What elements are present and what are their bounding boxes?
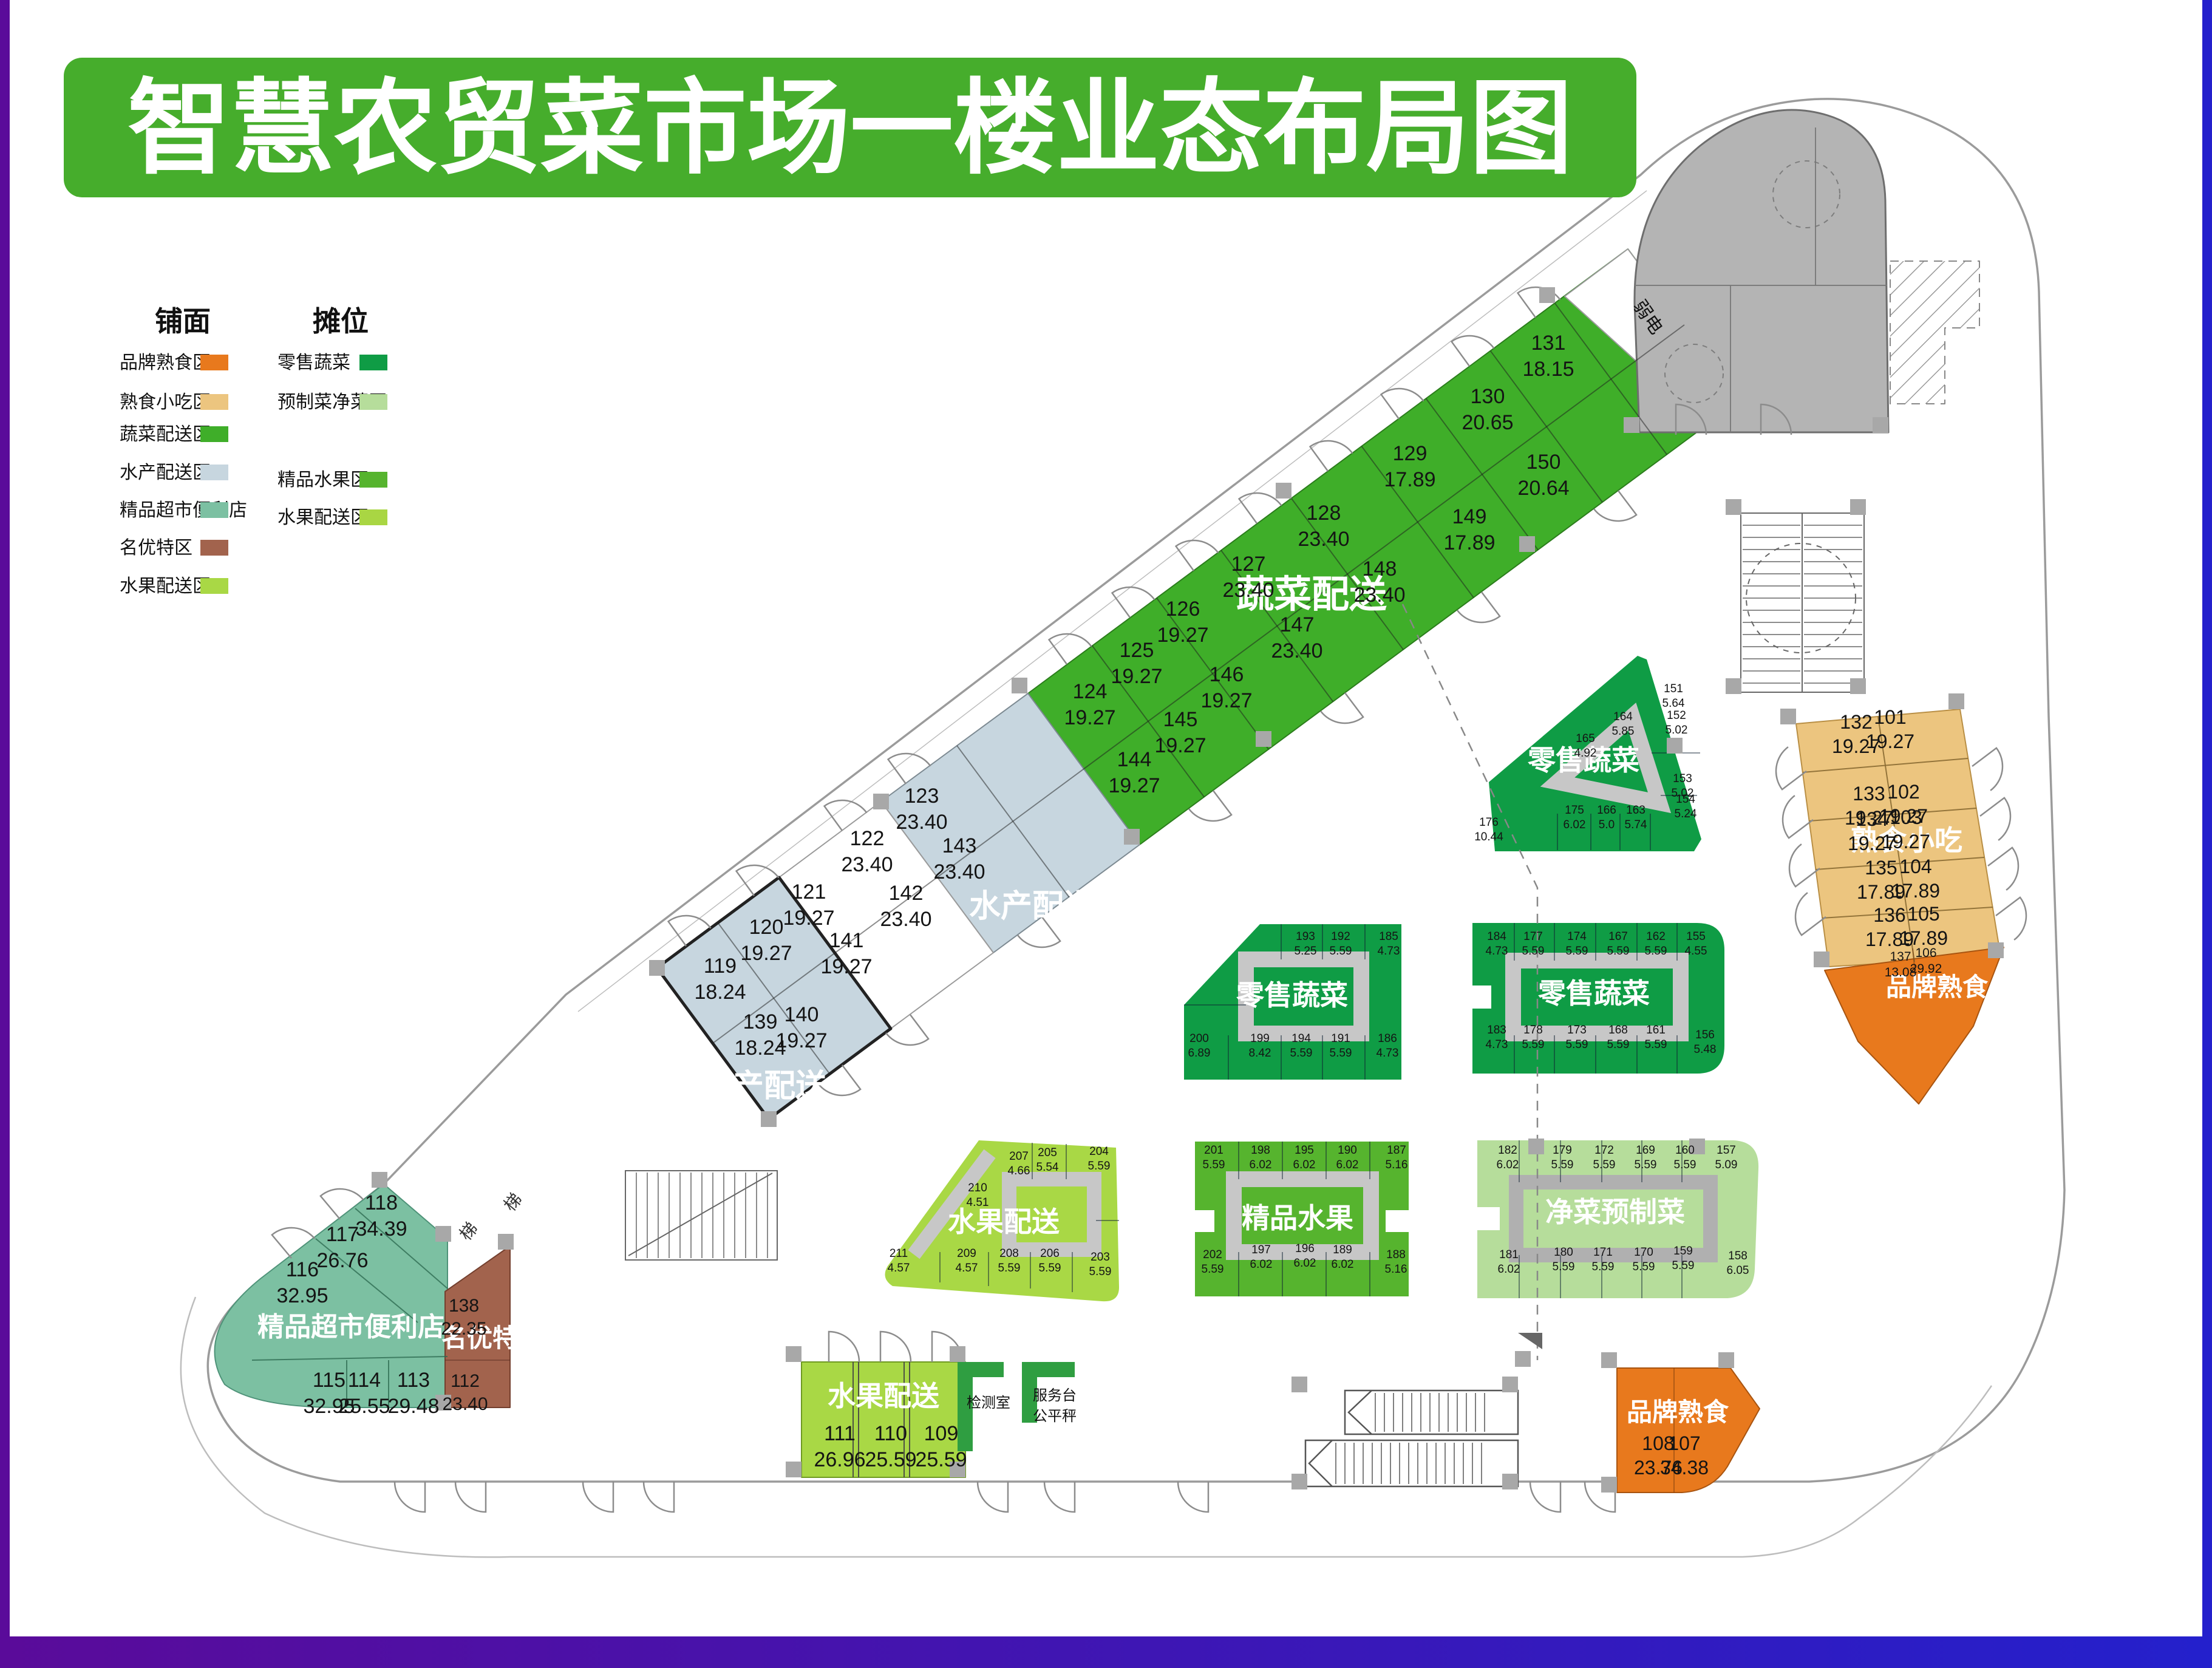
stall-210-area: 4.51 [967, 1196, 989, 1209]
stall-145-number: 145 [1163, 708, 1198, 731]
stall-198-area: 6.02 [1250, 1159, 1272, 1171]
stall-126-number: 126 [1166, 597, 1200, 621]
stall-211-number: 211 [890, 1247, 908, 1260]
stall-173-number: 173 [1567, 1024, 1587, 1037]
stall-142-area: 23.40 [880, 908, 931, 931]
stall-183-area: 4.73 [1486, 1038, 1508, 1051]
stall-154-number: 154 [1676, 793, 1695, 806]
stall-187-number: 187 [1387, 1144, 1406, 1157]
zone-label-aqua_upper: 水产配送 [969, 889, 1095, 924]
stall-165-area: 4.92 [1574, 747, 1597, 760]
legend-swatch [200, 540, 228, 556]
stall-185-area: 4.73 [1378, 945, 1400, 958]
stall-182-number: 182 [1498, 1144, 1517, 1157]
restroom-block [1635, 110, 1888, 432]
structural-column [1012, 678, 1027, 693]
door-swing-icon [1044, 1482, 1075, 1512]
structural-column [1124, 829, 1140, 845]
stall-154-area: 5.24 [1675, 808, 1697, 820]
stall-111-area: 26.96 [814, 1448, 865, 1471]
stall-158-area: 6.05 [1727, 1264, 1749, 1277]
stall-136-number: 136 [1873, 904, 1905, 926]
stall-203-area: 5.59 [1089, 1265, 1112, 1278]
stall-175-area: 6.02 [1564, 819, 1586, 831]
structural-column [1601, 1352, 1617, 1368]
stall-151-area: 5.64 [1662, 697, 1685, 710]
stall-148-area: 23.40 [1353, 584, 1405, 607]
stall-123-area: 23.40 [896, 811, 947, 834]
hatched-shaft [1890, 261, 1979, 404]
stall-129-number: 129 [1393, 442, 1428, 465]
stall-113-area: 29.48 [387, 1395, 439, 1418]
stall-175-number: 175 [1565, 804, 1584, 817]
stall-144-area: 19.27 [1108, 774, 1160, 797]
door-swing-icon [1530, 1482, 1560, 1512]
stall-197-area: 6.02 [1250, 1258, 1273, 1271]
door-swing-icon [1178, 1482, 1208, 1512]
door-swing-icon [395, 1482, 425, 1512]
stall-144-number: 144 [1117, 748, 1152, 771]
stall-157-area: 5.09 [1715, 1159, 1738, 1171]
stall-160-number: 160 [1675, 1144, 1695, 1157]
legend-item-stall-1: 预制菜净菜区 [277, 392, 387, 412]
legend-swatch [200, 355, 228, 370]
stall-200-number: 200 [1189, 1032, 1209, 1045]
stall-170-number: 170 [1634, 1246, 1653, 1259]
stall-141-area: 19.27 [820, 955, 872, 978]
stall-130-area: 20.65 [1462, 411, 1513, 434]
stall-186-area: 4.73 [1377, 1047, 1399, 1060]
stall-178-area: 5.59 [1522, 1038, 1545, 1051]
legend: 铺面 摊位 品牌熟食区熟食小吃区蔬菜配送区水产配送区精品超市便利店名优特区水果配… [120, 305, 387, 596]
structural-column [786, 1346, 801, 1362]
stall-168-number: 168 [1608, 1024, 1628, 1037]
structural-column [1515, 1351, 1531, 1367]
stall-118-area: 34.39 [355, 1217, 407, 1241]
plan-labels: 蔬菜配送水产配送水产配送精品超市便利店名优特水果配送零售蔬菜零售蔬菜零售蔬菜水果… [257, 297, 1989, 1479]
stall-174-area: 5.59 [1566, 945, 1588, 958]
legend-swatch [200, 426, 228, 442]
stall-197-number: 197 [1251, 1244, 1271, 1256]
stall-121-area: 19.27 [783, 907, 834, 930]
legend-item-label: 名优特区 [120, 538, 192, 558]
stall-167-area: 5.59 [1607, 945, 1630, 958]
stall-121-number: 121 [792, 880, 826, 904]
stall-209-area: 4.57 [956, 1262, 978, 1275]
legend-stall-heading: 摊位 [313, 305, 369, 337]
zone-label-supermarket: 精品超市便利店 [257, 1312, 444, 1342]
stall-153-number: 153 [1673, 772, 1692, 785]
zone-label-fruit_island: 水果配送 [948, 1206, 1060, 1237]
stall-176-area: 10.44 [1474, 831, 1503, 843]
stall-149-number: 149 [1452, 505, 1487, 528]
structural-column [1502, 1377, 1518, 1392]
stall-172-number: 172 [1594, 1144, 1614, 1157]
frame-left-bar [0, 0, 10, 1668]
door-swing-icon [880, 1332, 911, 1362]
stall-159-number: 159 [1673, 1245, 1693, 1258]
stall-122-area: 23.40 [841, 853, 893, 876]
page-title: 智慧农贸菜市场一楼业态布局图 [64, 58, 1636, 197]
stall-146-area: 19.27 [1200, 689, 1252, 712]
columns [372, 287, 2004, 1493]
zone-label-stair2: 梯 [500, 1190, 526, 1214]
zone-label-fair_scale: 公平秤 [1033, 1408, 1077, 1425]
stall-146-number: 146 [1210, 663, 1244, 686]
door-swing-icon [1980, 798, 2023, 840]
stall-189-area: 6.02 [1332, 1258, 1354, 1271]
stall-109-area: 25.59 [915, 1448, 967, 1471]
stall-103-number: 103 [1890, 806, 1922, 828]
structural-column [1502, 1474, 1518, 1489]
structural-column [1948, 693, 1964, 709]
structural-column [873, 794, 889, 809]
stall-115-area: 32.95 [303, 1395, 355, 1418]
stall-143-area: 23.40 [933, 860, 985, 883]
stall-189-number: 189 [1333, 1244, 1352, 1256]
zone-label-brand_bottom: 品牌熟食 [1627, 1398, 1729, 1426]
stall-155-number: 155 [1686, 930, 1706, 943]
stall-143-number: 143 [942, 834, 977, 857]
stall-116-number: 116 [286, 1258, 319, 1281]
stall-123-number: 123 [905, 785, 939, 808]
door-swing-icon [1972, 748, 2015, 791]
stall-194-area: 5.59 [1290, 1047, 1313, 1060]
door-swing-icon [1988, 848, 2030, 890]
zone-label-service_desk: 服务台 [1033, 1387, 1077, 1404]
stall-170-area: 5.59 [1633, 1261, 1655, 1273]
stall-141-number: 141 [829, 929, 864, 952]
stall-139-number: 139 [743, 1010, 778, 1033]
stall-182-area: 6.02 [1497, 1159, 1519, 1171]
stall-179-number: 179 [1553, 1144, 1572, 1157]
legend-item-label: 蔬菜配送区 [120, 424, 211, 444]
stall-125-area: 19.27 [1111, 665, 1162, 688]
stall-187-area: 5.16 [1386, 1159, 1408, 1171]
legend-swatch [359, 472, 387, 488]
stall-122-number: 122 [850, 827, 885, 850]
stall-142-number: 142 [889, 882, 924, 905]
zone-label-clean_veg: 净菜预制菜 [1545, 1196, 1685, 1228]
legend-item-stall-0: 零售蔬菜 [277, 353, 387, 373]
legend-item-shop-5: 名优特区 [120, 538, 228, 558]
stall-184-number: 184 [1487, 930, 1506, 943]
structural-column [1528, 1139, 1544, 1154]
stall-160-area: 5.59 [1674, 1159, 1696, 1171]
structural-column [1624, 417, 1639, 433]
stall-134-number: 134 [1856, 808, 1888, 830]
zone-label-retail_right: 零售蔬菜 [1538, 978, 1650, 1009]
structural-column [1256, 731, 1271, 747]
stall-166-number: 166 [1597, 804, 1616, 817]
structural-column [1814, 951, 1829, 967]
stall-164-area: 5.85 [1612, 725, 1635, 738]
stall-147-area: 23.40 [1271, 639, 1322, 662]
stall-150-number: 150 [1526, 451, 1561, 474]
stall-181-area: 6.02 [1498, 1263, 1520, 1276]
stall-108-area: 23.76 [1634, 1457, 1683, 1479]
legend-item-label: 精品水果区 [277, 470, 369, 490]
stall-155-area: 4.55 [1685, 945, 1707, 958]
structural-column [1601, 1477, 1617, 1493]
legend-swatch [359, 355, 387, 370]
stall-199-area: 8.42 [1249, 1047, 1271, 1060]
stall-119-number: 119 [704, 955, 737, 978]
stall-203-number: 203 [1091, 1251, 1110, 1264]
stall-101-number: 101 [1874, 706, 1906, 728]
stall-205-number: 205 [1038, 1146, 1057, 1159]
structural-column [1667, 738, 1683, 754]
stall-173-area: 5.59 [1566, 1038, 1588, 1051]
legend-item-label: 水产配送区 [120, 463, 211, 483]
stall-188-number: 188 [1386, 1248, 1406, 1261]
stall-147-number: 147 [1280, 613, 1315, 636]
stall-207-number: 207 [1009, 1150, 1029, 1163]
stall-163-area: 5.74 [1625, 819, 1647, 831]
legend-swatch [200, 465, 228, 480]
door-swing-icon [1996, 897, 2038, 940]
stall-188-area: 5.16 [1385, 1263, 1407, 1276]
market-floor-plan: 智慧农贸菜市场一楼业态布局图 铺面 摊位 品牌熟食区熟食小吃区蔬菜配送区水产配送… [0, 0, 2212, 1668]
stall-115-number: 115 [313, 1369, 345, 1392]
stall-150-area: 20.64 [1517, 477, 1569, 500]
legend-item-shop-1: 熟食小吃区 [120, 392, 228, 412]
door-swing-icon [978, 1482, 1008, 1512]
stall-171-number: 171 [1593, 1246, 1613, 1259]
stall-161-number: 161 [1646, 1024, 1666, 1037]
door-swing-icon [644, 1482, 674, 1512]
zones [215, 110, 2004, 1493]
structural-column [786, 1462, 801, 1477]
stall-163-number: 163 [1626, 804, 1645, 817]
stall-152-number: 152 [1667, 709, 1686, 722]
stall-168-area: 5.59 [1607, 1038, 1630, 1051]
structural-column [435, 1226, 451, 1242]
structural-column [372, 1172, 387, 1188]
legend-swatch [200, 502, 228, 518]
stall-111-number: 111 [824, 1422, 856, 1445]
stall-207-area: 4.66 [1008, 1165, 1030, 1177]
stall-102-number: 102 [1887, 781, 1919, 803]
stall-162-area: 5.59 [1645, 945, 1667, 958]
structural-column [1291, 1474, 1307, 1489]
stall-127-area: 23.40 [1222, 579, 1274, 602]
door-swings [272, 275, 2038, 1512]
legend-swatch [359, 394, 387, 410]
stall-204-area: 5.59 [1088, 1160, 1111, 1173]
stall-156-area: 5.48 [1694, 1043, 1717, 1056]
stall-105-number: 105 [1907, 903, 1939, 925]
legend-swatch [359, 509, 387, 525]
stall-180-area: 5.59 [1553, 1261, 1575, 1273]
stall-108-number: 108 [1642, 1432, 1674, 1454]
stall-128-number: 128 [1307, 502, 1341, 525]
zone-label-premium_fruit: 精品水果 [1242, 1202, 1353, 1234]
stall-205-area: 5.54 [1036, 1161, 1059, 1174]
stall-140-area: 19.27 [775, 1029, 827, 1052]
stall-206-area: 5.59 [1039, 1262, 1061, 1275]
stall-169-area: 5.59 [1635, 1159, 1657, 1171]
stall-132-area: 19.27 [1832, 735, 1880, 757]
stall-172-area: 5.59 [1593, 1159, 1616, 1171]
stall-201-number: 201 [1204, 1144, 1223, 1157]
stall-128-area: 23.40 [1298, 528, 1349, 551]
stall-171-area: 5.59 [1592, 1261, 1615, 1273]
stall-112-number: 112 [451, 1371, 480, 1391]
stall-161-area: 5.59 [1645, 1038, 1667, 1051]
stall-202-number: 202 [1203, 1248, 1222, 1261]
door-swing-icon [455, 1482, 486, 1512]
stall-138-number: 138 [449, 1296, 479, 1316]
stall-192-number: 192 [1331, 930, 1350, 943]
structural-column [1988, 942, 2004, 958]
stall-137-area: 13.08 [1885, 965, 1917, 979]
stall-140-number: 140 [784, 1003, 819, 1026]
legend-item-stall-3: 水果配送区 [277, 508, 387, 528]
stall-137-number: 137 [1890, 950, 1911, 964]
legend-item-shop-3: 水产配送区 [120, 463, 228, 483]
stall-138-area: 22.35 [441, 1319, 486, 1339]
stall-181-number: 181 [1499, 1248, 1519, 1261]
stall-210-number: 210 [968, 1182, 987, 1194]
structural-column [1276, 483, 1291, 499]
stall-199-number: 199 [1250, 1032, 1270, 1045]
zone-label-aqua_lower: 水产配送 [701, 1069, 827, 1104]
structural-column [1291, 1377, 1307, 1392]
legend-item-shop-6: 水果配送区 [120, 576, 228, 596]
stall-162-number: 162 [1646, 930, 1666, 943]
stall-180-number: 180 [1554, 1246, 1573, 1259]
stall-135-number: 135 [1865, 857, 1897, 879]
stall-157-number: 157 [1717, 1144, 1736, 1157]
stall-211-area: 4.57 [888, 1262, 910, 1275]
structural-column [1726, 499, 1741, 515]
structural-column [1726, 678, 1741, 694]
stall-192-area: 5.59 [1330, 945, 1352, 958]
stall-132-number: 132 [1840, 711, 1872, 733]
stall-169-number: 169 [1636, 1144, 1655, 1157]
stall-193-number: 193 [1296, 930, 1315, 943]
frame-bottom-bar [0, 1636, 2212, 1668]
stall-119-area: 18.24 [694, 981, 746, 1004]
stall-198-number: 198 [1251, 1144, 1270, 1157]
legend-item-label: 水果配送区 [277, 508, 369, 528]
stall-193-area: 5.25 [1295, 945, 1317, 958]
stall-124-number: 124 [1073, 680, 1108, 703]
stall-176-number: 176 [1479, 816, 1499, 829]
stall-131-area: 18.15 [1522, 358, 1574, 381]
stall-159-area: 5.59 [1672, 1259, 1695, 1272]
structural-column [649, 960, 665, 976]
stall-183-number: 183 [1487, 1024, 1506, 1037]
stall-204-number: 204 [1089, 1145, 1109, 1158]
stall-185-number: 185 [1379, 930, 1398, 943]
stall-191-area: 5.59 [1330, 1047, 1352, 1060]
stall-131-number: 131 [1531, 332, 1566, 355]
stall-125-number: 125 [1120, 639, 1154, 662]
stall-200-area: 6.89 [1188, 1047, 1211, 1060]
structural-column [1873, 417, 1888, 433]
stall-206-number: 206 [1040, 1247, 1060, 1260]
stall-184-area: 4.73 [1486, 945, 1508, 958]
legend-item-label: 零售蔬菜 [277, 353, 350, 373]
stall-186-number: 186 [1378, 1032, 1397, 1045]
stall-164-number: 164 [1613, 710, 1633, 723]
stall-202-area: 5.59 [1202, 1263, 1224, 1276]
stall-194-number: 194 [1291, 1032, 1311, 1045]
stall-208-number: 208 [999, 1247, 1019, 1260]
stall-145-area: 19.27 [1154, 734, 1206, 757]
stall-196-area: 6.02 [1294, 1257, 1316, 1270]
stall-113-number: 113 [397, 1369, 430, 1392]
structural-column [1519, 536, 1535, 552]
stall-104-number: 104 [1899, 856, 1931, 877]
stall-177-number: 177 [1523, 930, 1543, 943]
stall-167-number: 167 [1608, 930, 1628, 943]
stall-127-number: 127 [1231, 553, 1266, 576]
legend-item-shop-2: 蔬菜配送区 [120, 424, 228, 444]
legend-item-stall-2: 精品水果区 [277, 470, 387, 490]
stall-110-number: 110 [874, 1422, 907, 1445]
stall-120-number: 120 [749, 916, 784, 939]
structural-column [498, 1234, 514, 1250]
legend-swatch [200, 394, 228, 410]
stall-190-area: 6.02 [1336, 1159, 1359, 1171]
stall-152-area: 5.02 [1666, 724, 1688, 737]
zone-label-stair1: 梯 [456, 1219, 482, 1244]
stall-130-number: 130 [1471, 385, 1505, 408]
stall-116-area: 32.95 [276, 1284, 328, 1307]
frame-right-bar [2202, 0, 2212, 1668]
legend-item-label: 水果配送区 [120, 576, 211, 596]
stall-129-area: 17.89 [1384, 468, 1435, 491]
structural-column [1718, 1352, 1734, 1368]
legend-item-label: 品牌熟食区 [120, 353, 211, 373]
stall-179-area: 5.59 [1551, 1159, 1574, 1171]
door-swing-icon [829, 1332, 859, 1362]
stall-178-number: 178 [1523, 1024, 1543, 1037]
stall-124-area: 19.27 [1064, 706, 1115, 729]
stall-114-number: 114 [348, 1369, 381, 1392]
stall-158-number: 158 [1728, 1250, 1747, 1262]
stall-209-number: 209 [957, 1247, 976, 1260]
structural-column [761, 1111, 777, 1127]
stall-151-number: 151 [1664, 683, 1683, 695]
stall-120-area: 19.27 [740, 942, 792, 965]
page-title-text: 智慧农贸菜市场一楼业态布局图 [128, 71, 1573, 186]
stall-196-number: 196 [1295, 1242, 1315, 1255]
stall-118-number: 118 [365, 1191, 398, 1214]
legend-shop-heading: 铺面 [155, 305, 211, 337]
zone-label-retail_left: 零售蔬菜 [1236, 979, 1348, 1011]
stall-156-number: 156 [1695, 1029, 1715, 1041]
stall-191-number: 191 [1331, 1032, 1350, 1045]
stall-133-number: 133 [1853, 783, 1885, 805]
stall-195-area: 6.02 [1293, 1159, 1316, 1171]
stall-126-area: 19.27 [1157, 624, 1208, 647]
legend-swatch [200, 578, 228, 594]
stall-117-area: 26.76 [316, 1249, 368, 1272]
stall-174-number: 174 [1567, 930, 1587, 943]
stall-148-number: 148 [1363, 557, 1397, 580]
stall-190-number: 190 [1338, 1144, 1357, 1157]
structural-column [1850, 678, 1866, 694]
structural-column [950, 1346, 965, 1362]
stall-165-number: 165 [1576, 732, 1595, 745]
stall-117-number: 117 [326, 1223, 359, 1246]
legend-item-label: 熟食小吃区 [120, 392, 211, 412]
stall-136-area: 17.89 [1865, 928, 1914, 950]
